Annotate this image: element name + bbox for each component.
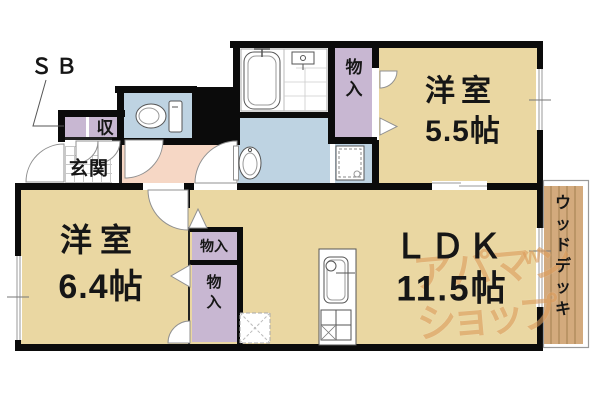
sb-leader-line [33, 80, 64, 126]
sb-label: ＳＢ [31, 57, 81, 78]
closet-mid-label: 物入 [200, 239, 228, 253]
western-5-5-name: 洋室 [425, 77, 497, 107]
wood-deck-label: ウッドデッキ [551, 193, 575, 320]
wash-basin [239, 147, 261, 179]
fixtures-layer [0, 0, 600, 400]
sliding-door [432, 181, 487, 188]
western-6-4-size: 6.4帖 [58, 270, 143, 304]
window [7, 256, 29, 340]
window [529, 69, 551, 130]
western-6-4-name: 洋室 [60, 224, 140, 256]
stove [321, 310, 351, 340]
refrigerator-space [240, 313, 270, 343]
folding-door-mark [171, 118, 397, 287]
watermark-mark: w [521, 243, 544, 270]
closet-bottom-label: 物入 [202, 273, 226, 313]
entrance-label: 玄関 [69, 160, 109, 179]
floor-plan: アパマン ショップ w ＳＢ 収 玄関 物入 洋室 5.5帖 洋室 6.4帖 Ｌ… [0, 0, 600, 400]
western-5-5-size: 5.5帖 [425, 117, 501, 147]
washing-machine [336, 146, 364, 180]
bathtub [244, 49, 280, 109]
shu-closet-label: 収 [97, 120, 114, 137]
ldk-name: ＬＤＫ [394, 230, 505, 264]
toilet [136, 101, 182, 132]
closet-top-label: 物入 [342, 57, 366, 102]
ldk-size: 11.5帖 [396, 272, 507, 307]
